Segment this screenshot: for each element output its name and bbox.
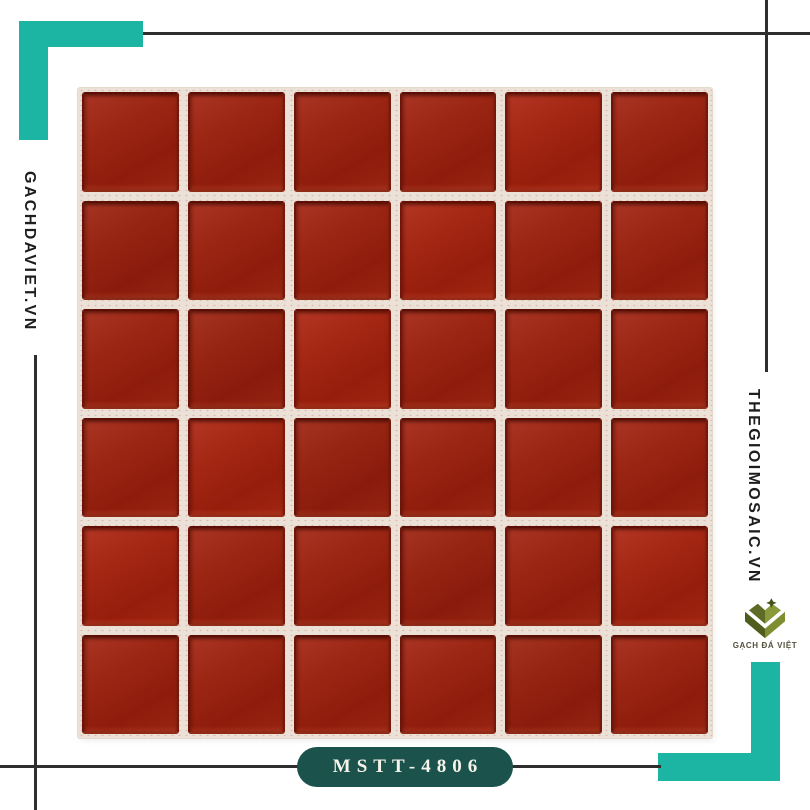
mosaic-tile	[400, 418, 497, 518]
mosaic-tile	[505, 201, 602, 301]
mosaic-tile	[400, 526, 497, 626]
mosaic-grid	[82, 92, 708, 734]
mosaic-tile	[505, 635, 602, 735]
mosaic-tile	[188, 526, 285, 626]
mosaic-tile	[82, 635, 179, 735]
mosaic-tile	[294, 309, 391, 409]
mosaic-sheet	[78, 88, 712, 738]
mosaic-tile	[611, 309, 708, 409]
brand-logo: GẠCH ĐÁ VIỆT	[729, 598, 801, 650]
mosaic-tile	[82, 526, 179, 626]
mosaic-tile	[294, 635, 391, 735]
frame-line-left	[34, 355, 37, 810]
product-showcase: GACHDAVIET.VN THEGIOIMOSAIC.VN MSTT-4806…	[0, 0, 810, 810]
mosaic-tile	[294, 526, 391, 626]
mosaic-tile	[611, 526, 708, 626]
mosaic-tile	[400, 92, 497, 192]
mosaic-tile	[82, 418, 179, 518]
mosaic-tile	[400, 201, 497, 301]
mosaic-tile	[505, 309, 602, 409]
mosaic-tile	[505, 418, 602, 518]
mosaic-tile	[611, 92, 708, 192]
mosaic-tile	[82, 92, 179, 192]
mosaic-tile	[294, 201, 391, 301]
logo-text: GẠCH ĐÁ VIỆT	[729, 641, 801, 650]
product-code-label: MSTT-4806	[327, 756, 483, 778]
product-code-badge: MSTT-4806	[297, 747, 513, 787]
mosaic-tile	[400, 309, 497, 409]
mosaic-tile	[294, 418, 391, 518]
mosaic-tile	[188, 418, 285, 518]
mosaic-tile	[82, 309, 179, 409]
logo-emblem-icon	[741, 598, 789, 640]
mosaic-tile	[400, 635, 497, 735]
mosaic-tile	[611, 635, 708, 735]
mosaic-tile	[505, 526, 602, 626]
right-watermark: THEGIOIMOSAIC.VN	[744, 389, 762, 584]
mosaic-tile	[188, 635, 285, 735]
frame-line-right	[765, 0, 768, 372]
mosaic-tile	[611, 418, 708, 518]
mosaic-tile	[188, 92, 285, 192]
mosaic-tile	[82, 201, 179, 301]
mosaic-tile	[188, 201, 285, 301]
mosaic-tile	[188, 309, 285, 409]
mosaic-tile	[611, 201, 708, 301]
mosaic-tile	[294, 92, 391, 192]
left-watermark: GACHDAVIET.VN	[20, 171, 38, 332]
mosaic-tile	[505, 92, 602, 192]
frame-line-top	[143, 32, 810, 35]
